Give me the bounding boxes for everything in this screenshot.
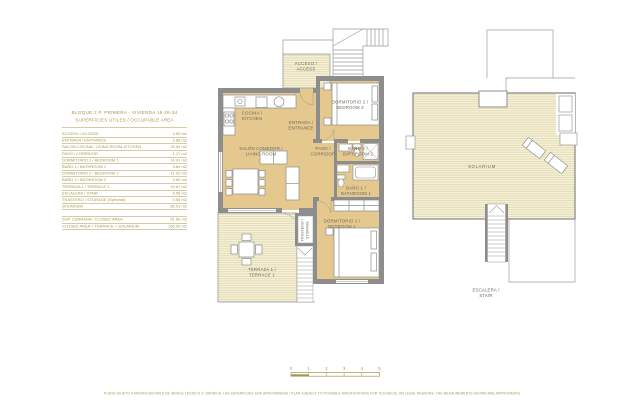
svg-text:4: 4 [361,366,364,371]
label-entrance: ENTRADA / [289,120,314,125]
svg-text:KITCHEN: KITCHEN [242,116,262,121]
label-kitchen: COCINA / [242,111,263,116]
label-terrace: TERRAZA 1 / [248,267,277,272]
svg-text:BEDROOM 1: BEDROOM 1 [328,224,356,229]
svg-text:TERRACE 1: TERRACE 1 [249,273,275,278]
sink-icon [337,165,349,172]
svg-text:BATHROOM 2: BATHROOM 2 [343,152,374,157]
svg-text:5: 5 [378,366,381,371]
label-corridor: PASO / [315,146,331,151]
svg-text:ENTRANCE: ENTRANCE [288,126,313,131]
solarium-area [406,30,577,282]
label-bathroom1: BAÑO 1 / [346,186,366,191]
scale-bar: 0 1 2 3 4 5 [290,366,382,376]
svg-text:CORRIDOR: CORRIDOR [311,152,336,157]
label-bedroom1: DORMITORIO 1 / [324,219,361,224]
disclaimer-text: PLANO SUJETO A MODIFICACIONES DE ÍNDOLE … [104,392,521,396]
svg-text:ACCESS: ACCESS [297,67,316,72]
fridge-icon [256,97,267,108]
label-solarium: SOLARIUM [468,164,496,169]
label-access: ACCESO / [295,61,318,66]
svg-text:BEDROOM 2: BEDROOM 2 [336,105,364,110]
svg-text:BATHROOM 1: BATHROOM 1 [341,191,372,196]
toilet-icon [338,179,344,187]
oven-icon [235,97,245,106]
label-bedroom2: DORMITORIO 2 / [332,100,369,105]
svg-text:STAIR: STAIR [479,293,492,298]
label-living-room: SALÓN COMEDOR / [239,146,283,151]
plan-sheet: BLOQUE 2 P. PRIMERA - VIVIENDA 18-26-34 … [0,0,620,406]
svg-text:1: 1 [307,366,310,371]
label-stair: ESCALERA / [472,288,500,293]
label-storage: TRASTERO / [301,219,305,241]
svg-text:2: 2 [325,366,328,371]
solarium-planter [559,96,572,112]
svg-text:LIVING ROOM: LIVING ROOM [246,152,277,157]
dining-table [233,169,258,194]
terrace-deck [218,213,297,302]
terrace-table [239,242,254,257]
exterior-stair-top [333,29,388,78]
svg-text:0: 0 [290,366,293,371]
floor-plan-svg: ACCESO / ACCESS COCINA / KITCHEN ENTRADA… [0,0,620,406]
label-bathroom2: BAÑO 2 / [348,146,368,151]
svg-text:STORAGE: STORAGE [306,221,310,239]
svg-text:3: 3 [343,366,346,371]
stair-bulkhead-outline [487,30,553,78]
solarium-planter [559,115,572,131]
